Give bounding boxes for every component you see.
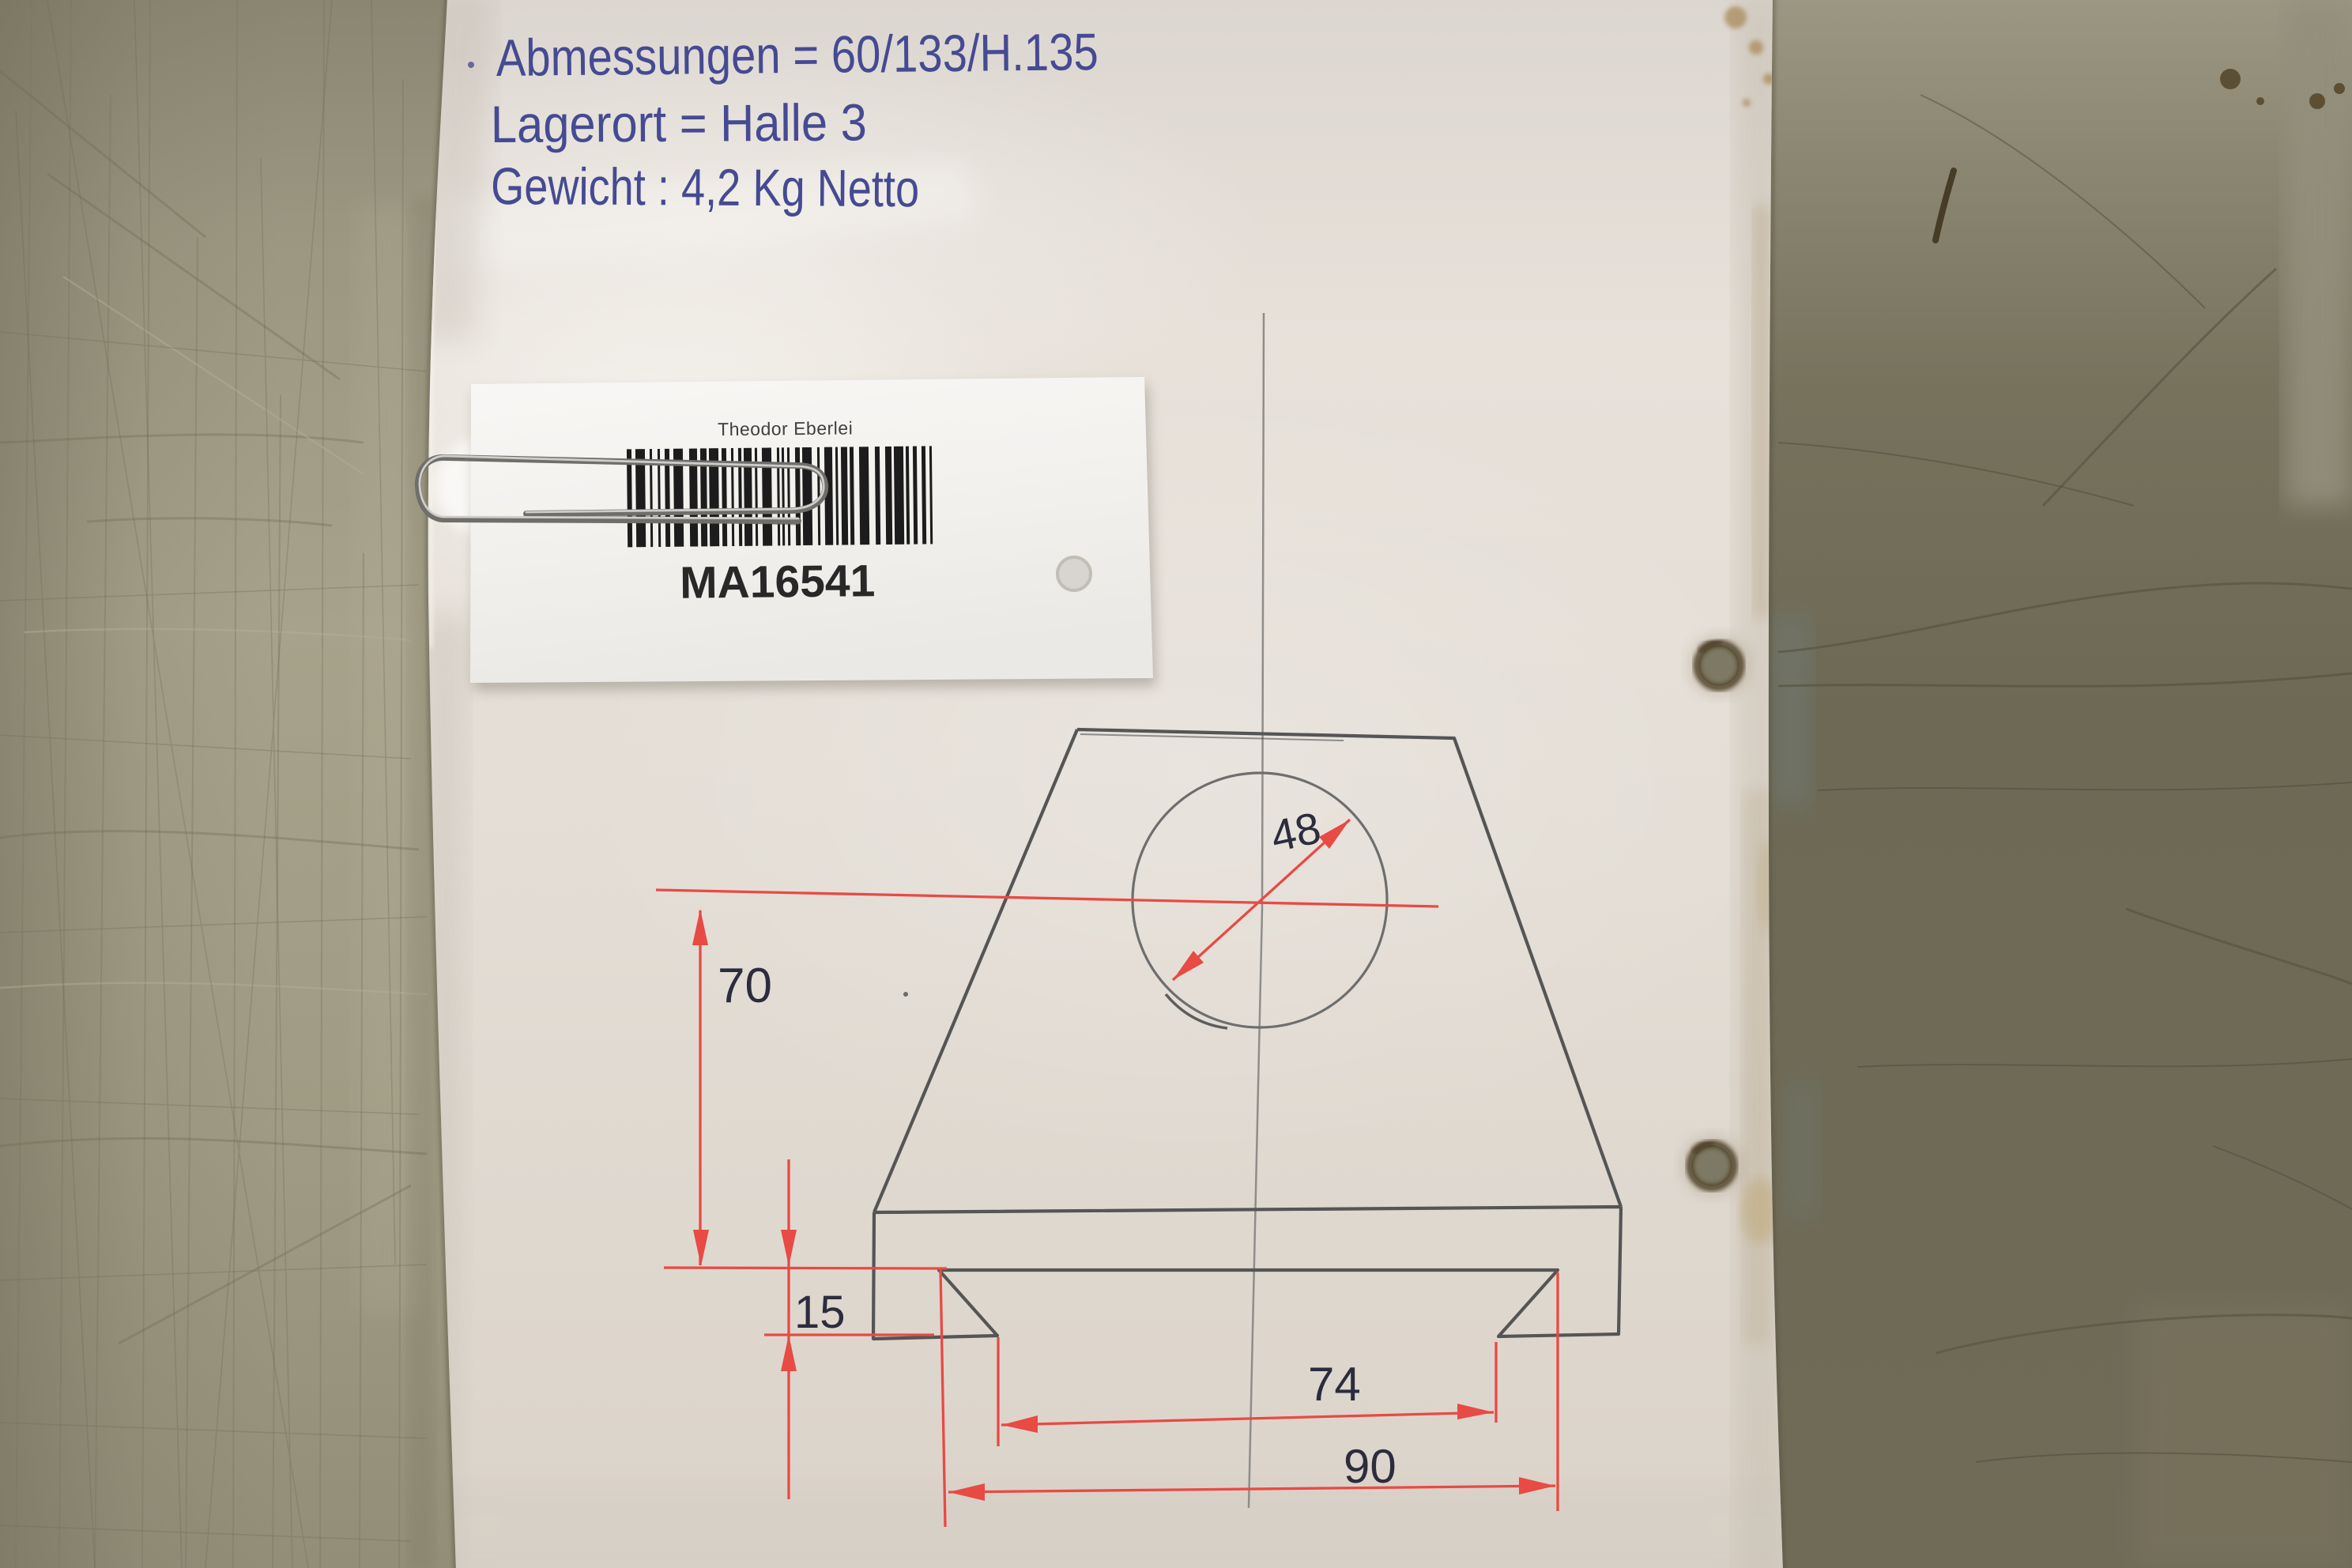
svg-text:70: 70 [718,959,772,1013]
svg-text:MA16541: MA16541 [680,556,876,609]
svg-text:Lagerort = Halle 3: Lagerort = Halle 3 [491,93,867,153]
svg-text:Abmessungen = 60/133/H.135: Abmessungen = 60/133/H.135 [496,22,1099,87]
svg-text:74: 74 [1308,1358,1361,1411]
svg-text:Gewicht : 4,2 Kg Netto: Gewicht : 4,2 Kg Netto [491,156,919,217]
svg-text:90: 90 [1344,1440,1396,1493]
svg-text:15: 15 [794,1287,846,1338]
svg-text:Theodor Eberlei: Theodor Eberlei [718,417,853,439]
svg-text:48: 48 [1266,802,1325,861]
